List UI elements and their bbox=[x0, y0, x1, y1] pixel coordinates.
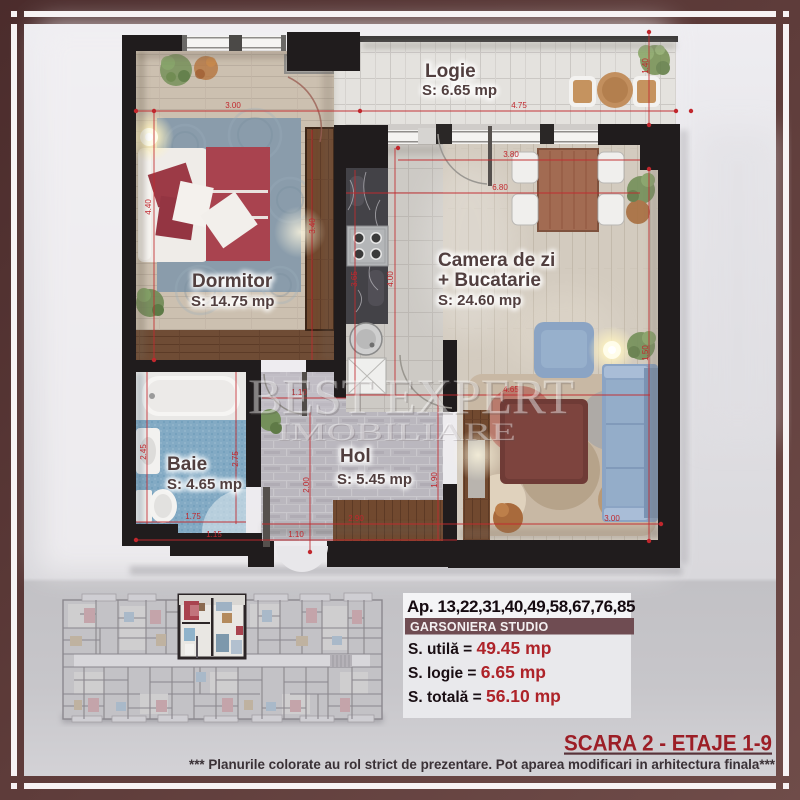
svg-text:*** Planurile colorate au rol: *** Planurile colorate au rol strict de … bbox=[189, 756, 776, 772]
svg-text:Logie: Logie bbox=[425, 61, 476, 82]
svg-text:3.00: 3.00 bbox=[225, 101, 241, 110]
svg-text:2.75: 2.75 bbox=[231, 451, 240, 467]
svg-text:GARSONIERA STUDIO: GARSONIERA STUDIO bbox=[410, 620, 548, 634]
svg-text:S: 5.45 mp: S: 5.45 mp bbox=[337, 471, 412, 488]
svg-text:S. utilă = 49.45 mp: S. utilă = 49.45 mp bbox=[408, 638, 551, 658]
svg-text:1.75: 1.75 bbox=[185, 512, 201, 521]
svg-text:IMOBILIARE: IMOBILIARE bbox=[277, 419, 516, 446]
svg-text:1.15: 1.15 bbox=[206, 530, 222, 539]
svg-text:1.50: 1.50 bbox=[641, 345, 650, 361]
svg-text:S: 6.65 mp: S: 6.65 mp bbox=[422, 82, 497, 99]
svg-text:Hol: Hol bbox=[340, 446, 371, 467]
svg-text:BEST EXPERT: BEST EXPERT bbox=[248, 368, 574, 424]
svg-text:4.40: 4.40 bbox=[144, 199, 153, 215]
svg-text:Baie: Baie bbox=[167, 454, 207, 475]
svg-text:Dormitor: Dormitor bbox=[192, 271, 273, 292]
svg-text:S. logie = 6.65 mp: S. logie = 6.65 mp bbox=[408, 662, 546, 682]
svg-text:1.10: 1.10 bbox=[288, 530, 304, 539]
svg-text:3.80: 3.80 bbox=[503, 150, 519, 159]
svg-text:4.00: 4.00 bbox=[386, 271, 395, 287]
svg-text:SCARA 2 - ETAJE 1-9: SCARA 2 - ETAJE 1-9 bbox=[564, 731, 772, 756]
svg-text:S: 24.60 mp: S: 24.60 mp bbox=[438, 292, 521, 309]
svg-text:2.90: 2.90 bbox=[348, 514, 364, 523]
svg-text:4.75: 4.75 bbox=[511, 101, 527, 110]
svg-text:3.65: 3.65 bbox=[350, 271, 359, 287]
svg-text:3.40: 3.40 bbox=[308, 218, 317, 234]
svg-text:+ Bucatarie: + Bucatarie bbox=[438, 270, 541, 291]
svg-text:2.45: 2.45 bbox=[139, 444, 148, 460]
svg-text:1.40: 1.40 bbox=[641, 58, 650, 74]
svg-text:6.80: 6.80 bbox=[492, 183, 508, 192]
svg-text:Camera de zi: Camera de zi bbox=[438, 250, 555, 271]
svg-text:S. totală = 56.10 mp: S. totală = 56.10 mp bbox=[408, 686, 561, 706]
svg-text:S: 4.65 mp: S: 4.65 mp bbox=[167, 476, 242, 493]
svg-text:2.00: 2.00 bbox=[302, 477, 311, 493]
svg-text:S: 14.75 mp: S: 14.75 mp bbox=[191, 293, 274, 310]
svg-text:Ap. 13,22,31,40,49,58,67,76,85: Ap. 13,22,31,40,49,58,67,76,85 bbox=[407, 597, 635, 616]
svg-text:3.00: 3.00 bbox=[604, 514, 620, 523]
svg-text:1.90: 1.90 bbox=[430, 472, 439, 488]
